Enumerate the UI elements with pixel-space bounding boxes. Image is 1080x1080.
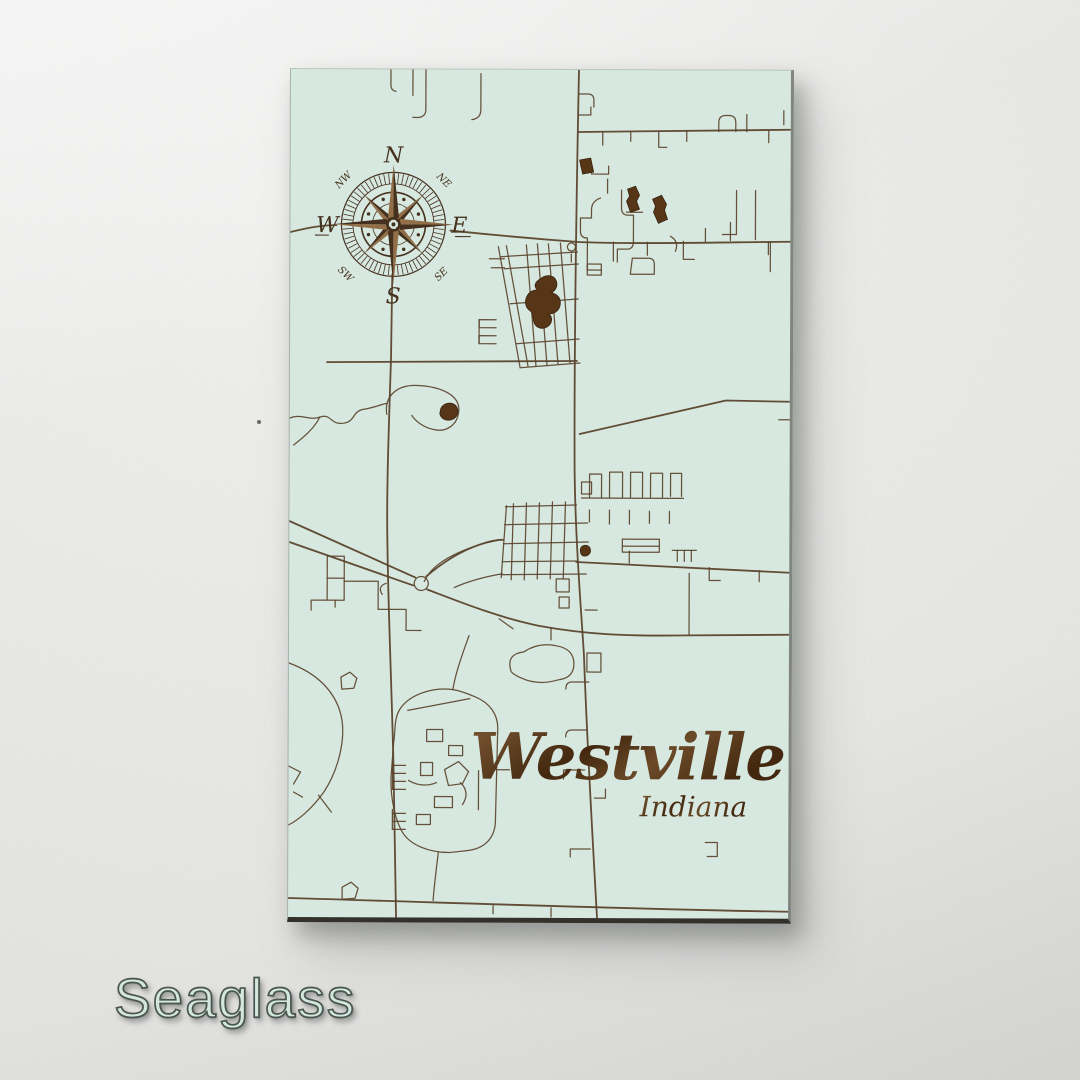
map-title: Westville [470, 720, 785, 796]
compass-label-s: S [386, 284, 401, 309]
street-map: N S E W NW NE SW SE Westville Indiana [288, 69, 791, 919]
compass-label-nw: NW [333, 169, 355, 191]
map-subtitle: Indiana [639, 790, 748, 823]
compass-label-ne: NE [433, 170, 453, 190]
compass-label-e: E [450, 214, 467, 239]
compass-rose: N S E W NW NE SW SE [315, 143, 471, 310]
compass-label-w: W [316, 213, 341, 238]
paper-speck [257, 420, 261, 424]
compass-label-sw: SW [335, 264, 355, 284]
product-photo: { "product": { "title": "Westville", "su… [0, 0, 1080, 1080]
map-panel: N S E W NW NE SW SE Westville Indiana [287, 68, 794, 924]
color-name-label: Seaglass [114, 966, 356, 1030]
compass-label-n: N [383, 143, 404, 168]
compass-label-se: SE [433, 265, 451, 283]
